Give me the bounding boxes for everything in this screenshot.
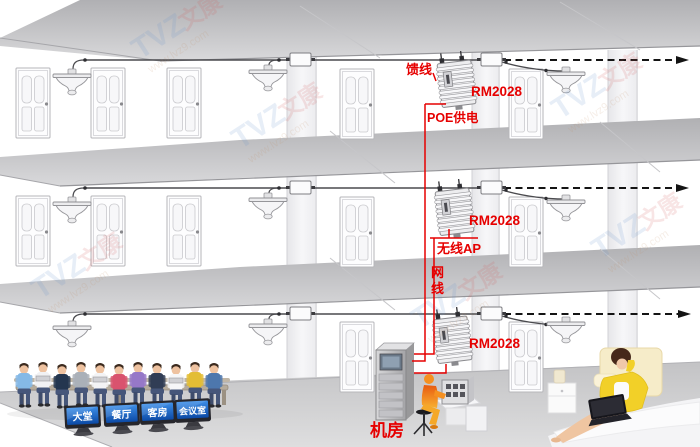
door <box>340 197 374 267</box>
diagram-canvas: 大堂 餐厅 客房 会议室 <box>0 0 700 447</box>
roof-slab <box>0 0 700 61</box>
splitter <box>477 53 506 66</box>
door <box>16 196 50 266</box>
splitter <box>286 307 315 320</box>
door <box>167 68 201 138</box>
door <box>340 322 374 392</box>
machine-room-label: 机房 <box>370 420 404 440</box>
laptop <box>36 376 50 381</box>
arrowhead <box>676 184 689 192</box>
door <box>509 322 543 392</box>
laptop <box>93 377 107 382</box>
patch-cable <box>414 364 446 373</box>
door <box>167 196 201 266</box>
cabinet <box>466 406 487 431</box>
lamp <box>554 370 565 383</box>
building-wifi-coverage-diagram: 大堂 餐厅 客房 会议室 <box>0 0 700 447</box>
arrowhead <box>678 310 691 318</box>
net-cable-label-2: 线 <box>431 281 444 296</box>
poe-label: POE供电 <box>427 110 479 125</box>
room-label-restaurant: 餐厅 <box>110 408 132 422</box>
ceiling-antenna <box>547 317 585 343</box>
ceiling-antenna <box>249 193 287 219</box>
nightstand <box>548 383 576 413</box>
door <box>340 69 374 139</box>
device-label-floor2: RM2028 <box>469 213 521 228</box>
arrowhead <box>676 56 689 64</box>
net-cable-label-1: 网 <box>431 265 444 280</box>
face <box>617 359 628 370</box>
feeder-label: 馈线 <box>406 62 432 77</box>
ceiling-antenna <box>53 197 91 223</box>
splitter <box>286 53 315 66</box>
door <box>16 68 50 138</box>
device-label-floor1: RM2028 <box>471 84 523 99</box>
device-label-floor3: RM2028 <box>469 336 521 351</box>
door <box>509 197 543 267</box>
door <box>91 68 125 138</box>
ceiling-antenna <box>249 65 287 91</box>
wireless-ap-label: 无线AP <box>436 241 481 256</box>
feeder-pointer-line <box>433 73 436 81</box>
splitter <box>286 181 315 194</box>
ceiling-antenna <box>249 319 287 345</box>
room-label-guestroom: 客房 <box>146 406 168 420</box>
room-label-lobby: 大堂 <box>72 410 93 424</box>
laptop <box>169 378 183 383</box>
door <box>509 69 543 139</box>
splitter <box>477 181 506 194</box>
ceiling-antenna <box>53 321 91 347</box>
rm2028-device <box>432 178 476 240</box>
room-label-meeting-room: 会议室 <box>179 404 207 416</box>
ceiling-antenna <box>53 69 91 95</box>
